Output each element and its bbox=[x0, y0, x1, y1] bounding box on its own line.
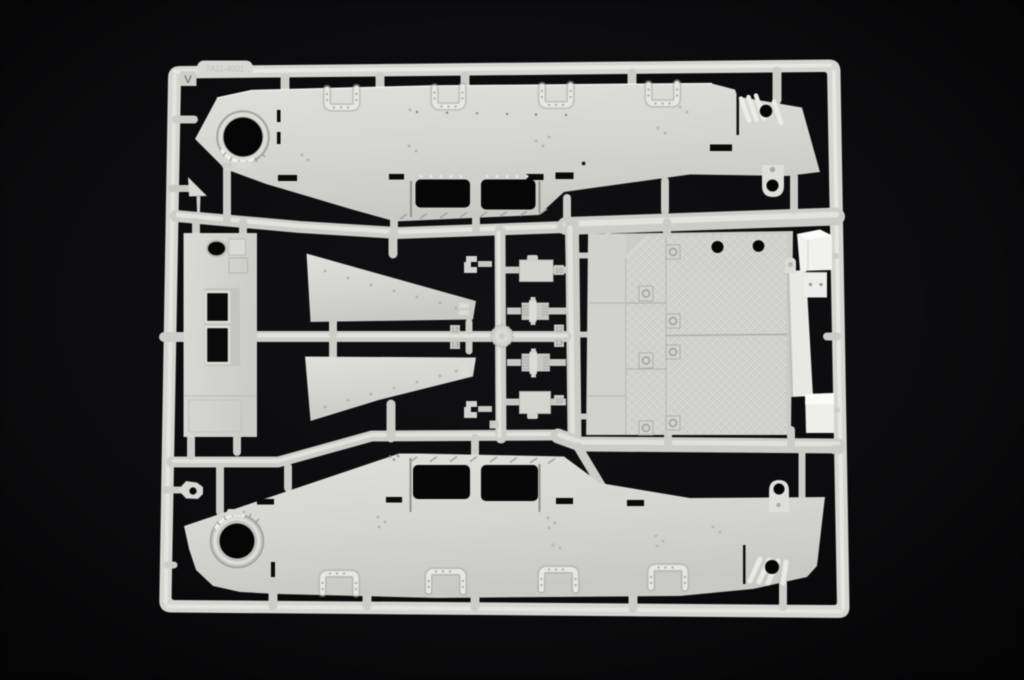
svg-text:13: 13 bbox=[555, 340, 563, 347]
svg-text:10: 10 bbox=[555, 268, 563, 275]
svg-text:13: 13 bbox=[451, 342, 459, 349]
svg-text:12: 12 bbox=[451, 327, 459, 334]
svg-text:V: V bbox=[184, 74, 192, 86]
svg-text:12: 12 bbox=[555, 327, 563, 334]
svg-text:10: 10 bbox=[555, 398, 563, 405]
svg-text:7A11-4001: 7A11-4001 bbox=[206, 65, 245, 74]
